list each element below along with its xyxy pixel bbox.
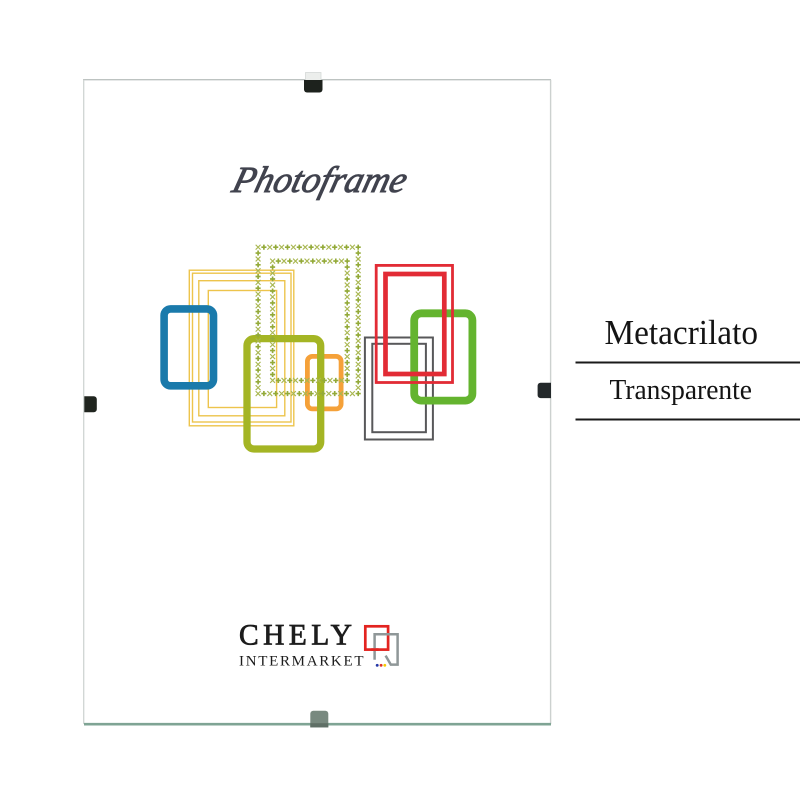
svg-text:Photoframe: Photoframe <box>227 160 412 201</box>
svg-text:INTERMARKET: INTERMARKET <box>239 654 365 670</box>
svg-text:CHELY: CHELY <box>239 620 356 652</box>
svg-text:Metacrilato: Metacrilato <box>605 313 759 352</box>
svg-text:Transparente: Transparente <box>610 374 753 406</box>
